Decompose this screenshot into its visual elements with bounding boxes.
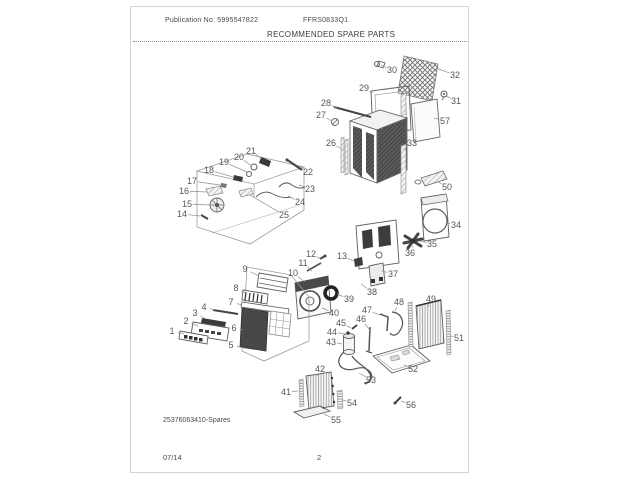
callout-leader	[230, 164, 247, 172]
callout-leader	[373, 312, 380, 315]
callout-number: 24	[295, 197, 305, 207]
callout-number: 48	[394, 297, 404, 307]
part-motor-screw	[320, 255, 327, 260]
callout-leader	[338, 333, 346, 334]
callout-number: 7	[228, 297, 233, 307]
callout-number: 12	[306, 249, 316, 259]
callout-number: 50	[442, 182, 452, 192]
callout-number: 41	[281, 387, 291, 397]
part-evaporator-coil	[306, 372, 335, 410]
callout-number: 6	[231, 323, 236, 333]
callout-number: 57	[440, 116, 450, 126]
callout-number: 27	[316, 110, 326, 120]
part-compressor	[344, 325, 358, 355]
callout-number: 20	[234, 152, 244, 162]
part-mount-bolt	[366, 327, 372, 353]
part-base-pan	[373, 345, 430, 373]
callout-number: 49	[426, 294, 436, 304]
callout-number: 5	[228, 340, 233, 350]
callout-number: 46	[356, 314, 366, 324]
parts-diagram-svg: 1234567891011121314151617181920212223242…	[0, 0, 640, 480]
callout-number: 15	[182, 199, 192, 209]
callout-number: 3	[192, 308, 197, 318]
callout-number: 53	[366, 375, 376, 385]
callout-number: 34	[451, 220, 461, 230]
part-louver	[257, 273, 288, 292]
callout-number: 9	[242, 264, 247, 274]
callout-number: 8	[233, 283, 238, 293]
callout-number: 51	[454, 333, 464, 343]
callout-number: 16	[179, 186, 189, 196]
callout-number: 21	[246, 146, 256, 156]
part-wires	[256, 183, 305, 198]
callout-number: 39	[344, 294, 354, 304]
callout-leader	[436, 68, 449, 73]
part-clip	[332, 119, 339, 126]
part-impeller	[210, 198, 224, 212]
callout-leader	[215, 172, 233, 177]
callout-leader	[193, 204, 210, 205]
callout-number: 2	[183, 316, 188, 326]
callout-number: 11	[298, 258, 307, 268]
callout-number: 36	[405, 248, 415, 258]
callout-number: 30	[387, 65, 397, 75]
part-seal-strips	[341, 137, 348, 175]
callout-number: 33	[407, 138, 417, 148]
callout-leader	[343, 400, 346, 401]
part-wire-loop	[390, 312, 403, 335]
part-mount-plate	[206, 186, 223, 196]
callout-leader	[446, 96, 451, 98]
part-cabinet-shell	[350, 93, 407, 194]
callout-number: 55	[331, 415, 341, 425]
part-motor-mount	[369, 263, 385, 286]
part-side-panel	[411, 99, 440, 142]
callout-leader	[337, 343, 342, 344]
part-grommet	[441, 91, 447, 100]
callout-leader	[198, 182, 220, 185]
callout-leader	[250, 195, 279, 212]
callout-leader	[451, 336, 453, 337]
callout-number: 28	[321, 98, 331, 108]
callout-number: 35	[427, 239, 437, 249]
callout-leader	[250, 272, 259, 276]
part-seal-rod	[334, 107, 371, 117]
manual-page: Publication No: 5995547822 FFRS0833Q1 RE…	[0, 0, 640, 480]
callout-leader	[359, 373, 366, 377]
callout-leader	[292, 391, 298, 392]
callout-number: 22	[303, 167, 313, 177]
part-filter-grid	[269, 311, 291, 337]
callout-number: 10	[288, 268, 298, 278]
callout-number: 43	[326, 337, 336, 347]
callout-number: 37	[388, 269, 398, 279]
part-motor-shaft	[307, 263, 321, 271]
callout-number: 18	[204, 165, 214, 175]
part-condenser-coil	[416, 300, 444, 349]
callout-number: 44	[327, 327, 337, 337]
callout-number: 47	[362, 305, 372, 315]
callout-number: 45	[336, 318, 346, 328]
callout-number: 14	[177, 209, 187, 219]
part-chassis-screw	[201, 215, 208, 219]
callout-leader	[190, 191, 207, 192]
part-base-rail	[294, 406, 330, 418]
callout-number: 1	[169, 326, 174, 336]
callout-number: 4	[201, 302, 206, 312]
callout-number: 52	[408, 364, 418, 374]
callout-number: 31	[451, 96, 461, 106]
callout-number: 17	[187, 176, 197, 186]
callout-leader	[401, 401, 405, 403]
callout-number: 40	[329, 308, 339, 318]
part-intake-mesh	[240, 308, 268, 351]
callout-leader	[346, 326, 351, 328]
callout-leader	[299, 185, 304, 187]
callout-number: 54	[347, 398, 357, 408]
callout-leader	[188, 215, 200, 216]
callout-leader	[324, 414, 331, 417]
callout-leader	[365, 324, 369, 329]
part-condenser-fan-blade	[404, 234, 422, 248]
part-top-bracket	[375, 61, 386, 68]
callout-number: 56	[406, 400, 416, 410]
callout-leader	[348, 258, 354, 261]
callout-number: 23	[305, 184, 315, 194]
callout-number: 26	[326, 138, 336, 148]
part-base-screw	[394, 397, 402, 405]
part-link-rod	[286, 159, 303, 171]
part-vent-grille	[242, 290, 268, 304]
callout-leader	[256, 155, 262, 159]
callout-leader	[244, 160, 252, 166]
callout-number: 32	[450, 70, 460, 80]
callout-number: 42	[315, 364, 325, 374]
callout-leader	[395, 307, 397, 311]
callout-leader	[326, 118, 332, 121]
callout-number: 38	[367, 287, 377, 297]
part-support-rod	[213, 310, 238, 314]
callout-number: 19	[219, 157, 229, 167]
callout-number: 13	[337, 251, 347, 261]
part-fan-shroud	[421, 194, 449, 241]
callout-number: 29	[359, 83, 369, 93]
callout-number: 25	[279, 210, 289, 220]
part-bracket-hook	[380, 314, 388, 331]
